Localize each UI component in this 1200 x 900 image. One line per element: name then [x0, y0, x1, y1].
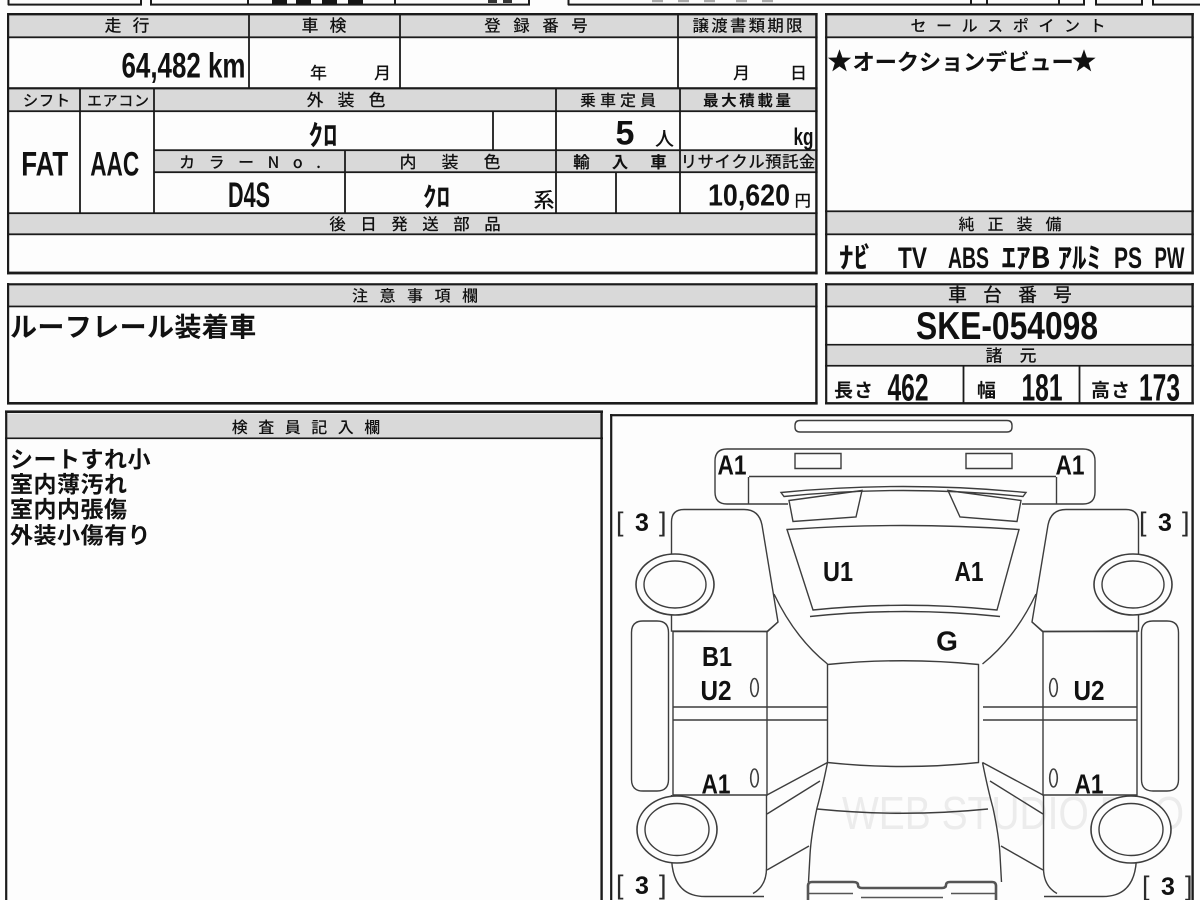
- svg-text:173: 173: [1139, 368, 1180, 410]
- svg-text:[: [: [1142, 871, 1150, 900]
- svg-text:462: 462: [888, 368, 929, 410]
- svg-text:A1: A1: [718, 450, 747, 481]
- svg-text:A1: A1: [1056, 450, 1085, 481]
- svg-text:5: 5: [616, 115, 635, 153]
- svg-text:]: ]: [1182, 507, 1190, 537]
- svg-text:SKE-054098: SKE-054098: [916, 305, 1098, 348]
- svg-text:PS: PS: [1114, 242, 1142, 275]
- svg-text:FAT: FAT: [21, 146, 68, 184]
- svg-text:U2: U2: [701, 675, 732, 706]
- svg-text:3: 3: [635, 872, 649, 900]
- svg-text:3: 3: [1158, 509, 1172, 537]
- svg-text:G: G: [936, 626, 958, 657]
- svg-text:[: [: [616, 507, 624, 537]
- svg-text:64,482 km: 64,482 km: [122, 47, 246, 86]
- svg-text:]: ]: [659, 507, 667, 537]
- svg-text:TV: TV: [898, 242, 927, 275]
- svg-text:A1: A1: [702, 769, 731, 800]
- svg-text:]: ]: [1185, 871, 1193, 900]
- svg-text:PW: PW: [1155, 242, 1185, 275]
- svg-text:]: ]: [659, 870, 667, 900]
- svg-text:D4S: D4S: [228, 176, 270, 215]
- svg-text:B1: B1: [702, 641, 732, 672]
- svg-text:A1: A1: [1075, 769, 1104, 800]
- svg-text:10,620: 10,620: [708, 178, 790, 213]
- svg-text:A1: A1: [955, 556, 984, 587]
- svg-text:3: 3: [635, 509, 649, 537]
- svg-text:[: [: [1139, 507, 1147, 537]
- svg-text:AAC: AAC: [90, 146, 139, 184]
- svg-text:3: 3: [1161, 873, 1175, 900]
- svg-text:[: [: [616, 870, 624, 900]
- svg-text:181: 181: [1022, 368, 1063, 410]
- svg-text:U1: U1: [823, 556, 853, 587]
- svg-text:kg: kg: [794, 124, 814, 151]
- svg-text:ABS: ABS: [948, 242, 989, 275]
- svg-text:U2: U2: [1074, 675, 1105, 706]
